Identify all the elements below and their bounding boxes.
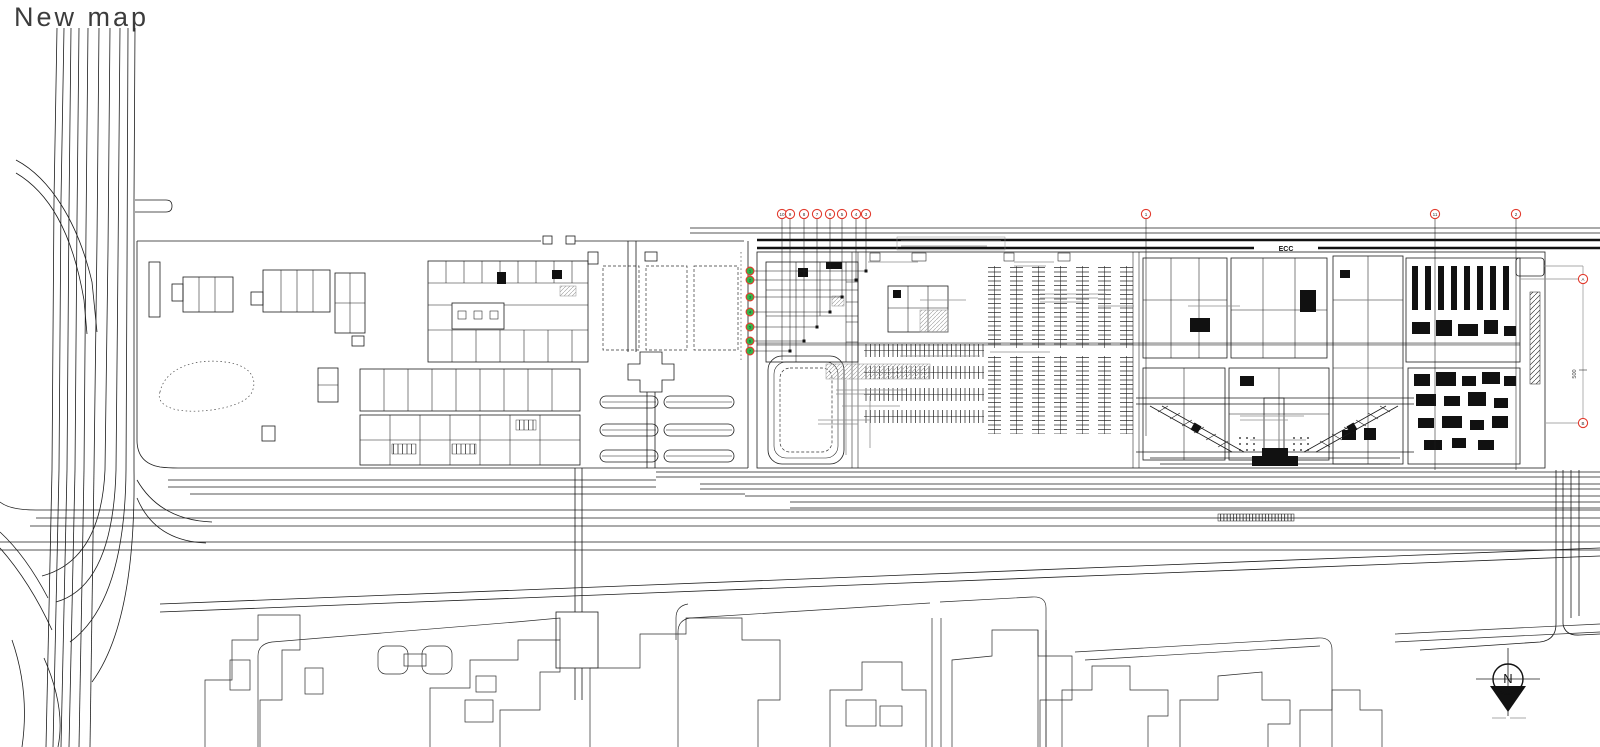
callout-side-6: 6 — [749, 340, 751, 344]
site-plan-drawing: ECC — [0, 0, 1600, 747]
shed-strips — [600, 396, 734, 462]
buildings-right — [1143, 256, 1544, 464]
callout-top-3: 8 — [803, 212, 806, 217]
callout-mid: 1 — [1145, 212, 1148, 217]
callout-top-4: 7 — [816, 212, 819, 217]
callout-top-8: 3 — [865, 212, 868, 217]
dimension-label: 500 — [1572, 369, 1578, 378]
callout-side-3: 3 — [749, 296, 751, 300]
railway-tick-strip — [1218, 514, 1294, 521]
dim-marker-bottom: B — [1582, 421, 1585, 426]
bottom-roads — [0, 472, 1600, 612]
callout-side-7: 7 — [749, 350, 751, 354]
north-letter: N — [1503, 671, 1512, 686]
road-right-edge — [1420, 470, 1600, 650]
highway-left — [0, 28, 212, 747]
callout-top-2: 9 — [789, 212, 792, 217]
callout-top-1: 10 — [779, 212, 785, 217]
bottom-buildings — [205, 615, 1382, 747]
callout-top-7: 4 — [855, 212, 858, 217]
callout-side-1: 1 — [749, 270, 751, 274]
main-complex: ECC — [690, 228, 1600, 468]
callout-top-5: 6 — [829, 212, 832, 217]
cad-site-plan-page: { "title": "New map", "colors": { "ink":… — [0, 0, 1600, 747]
north-arrow-icon: N — [1476, 648, 1540, 718]
callout-right-a: 11 — [1433, 212, 1438, 217]
parking-columns — [988, 266, 1133, 434]
site-compound — [137, 236, 748, 700]
callout-side-5: 5 — [749, 326, 751, 330]
dim-marker-top: A — [1582, 277, 1585, 282]
bottom-parcels — [258, 597, 1600, 747]
callout-side-2: 2 — [749, 279, 751, 283]
callout-right-b: 2 — [1515, 212, 1518, 217]
callout-side-4: 4 — [749, 311, 751, 315]
callout-top-6: 5 — [841, 212, 844, 217]
